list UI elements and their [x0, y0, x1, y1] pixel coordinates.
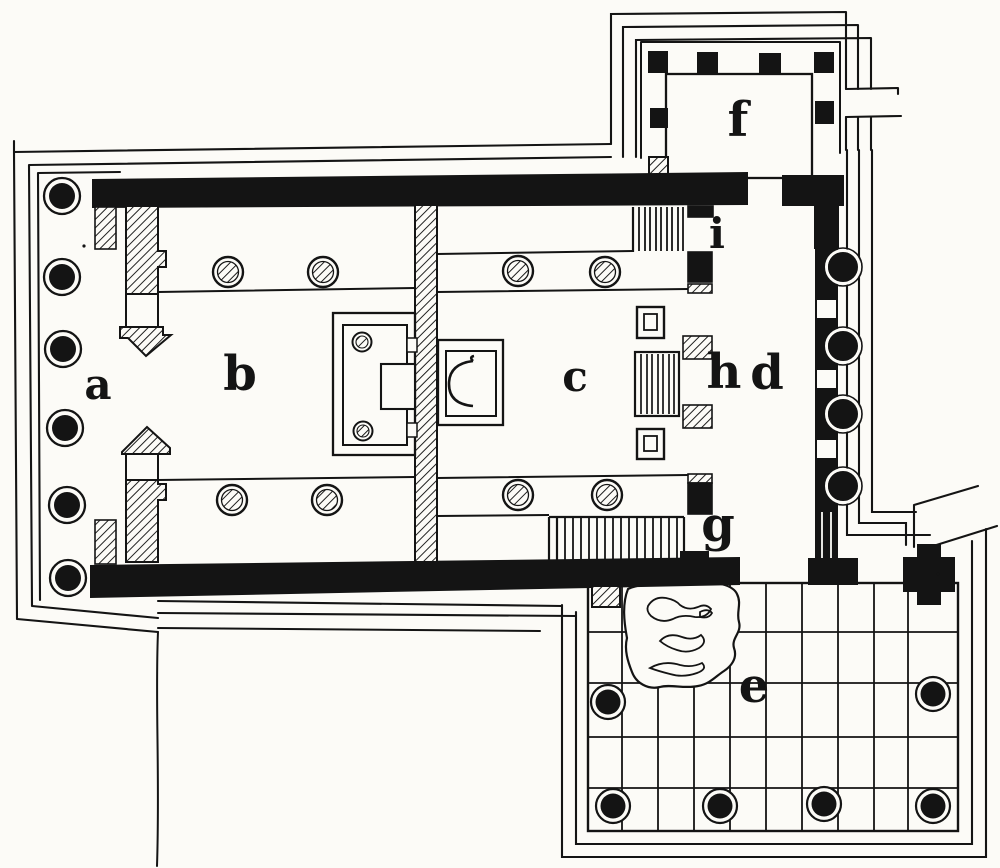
- statue-platform: [333, 313, 417, 455]
- room-c-striped-dais: [635, 352, 679, 416]
- room-b-aisle-lines: [158, 288, 415, 480]
- room-label-d: d: [750, 345, 784, 401]
- room-label-h: h: [707, 344, 742, 400]
- cella-b-west-wall: [120, 206, 171, 562]
- north-east-stairs: [633, 207, 683, 252]
- court-e-columns: [591, 677, 950, 823]
- corridor-d: [782, 175, 862, 560]
- corridor-end-pier: [808, 558, 858, 585]
- north-wall: [92, 172, 748, 208]
- south-stairs: [549, 517, 684, 561]
- court-e: [588, 582, 958, 831]
- room-label-i: i: [709, 209, 725, 258]
- room-label-b: b: [223, 346, 257, 402]
- room-label-f: f: [728, 92, 752, 148]
- cross-pier: [903, 544, 955, 605]
- room-label-g: g: [701, 497, 735, 553]
- portico-a-columns: [44, 178, 86, 596]
- rock-outcrop: [624, 582, 739, 687]
- floor-plan-canvas: a b c d e f g h i: [0, 0, 1000, 868]
- room-label-e: e: [739, 658, 770, 714]
- central-cross-wall: [415, 205, 437, 562]
- south-anta-pier: [95, 520, 116, 564]
- room-b: [158, 257, 417, 515]
- north-anta-pier: [95, 207, 116, 249]
- room-label-a: a: [84, 360, 111, 409]
- room-label-c: c: [562, 352, 588, 401]
- door-g-block: [680, 551, 737, 585]
- ink-speck: [82, 244, 85, 247]
- floor-plan-figure: a b c d e f g h i: [0, 0, 1000, 868]
- ink-speck: [936, 572, 939, 575]
- altar-hatched-base: [592, 586, 620, 607]
- apse-niche: [438, 340, 503, 425]
